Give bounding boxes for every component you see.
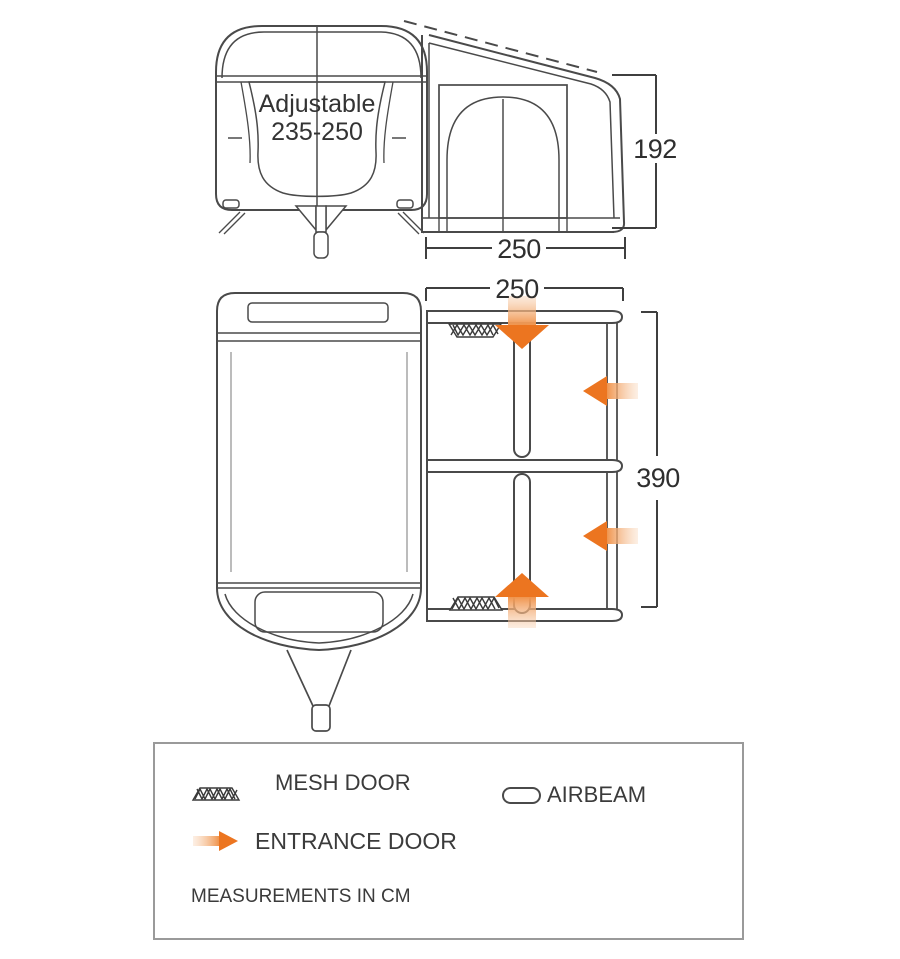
entrance-door-label: ENTRANCE DOOR [255,828,457,855]
mesh-door-symbol-front [449,324,501,337]
mesh-door-label: MESH DOOR [275,770,411,796]
awning-plan-view [427,311,622,621]
measurements-note: MEASUREMENTS IN CM [191,886,411,908]
awning-side-view [404,21,624,232]
hitch-front [296,206,346,258]
entrance-arrow-side-upper [583,376,638,406]
roof-dashed-line [404,21,597,72]
awning-dimensions-diagram: Adjustable 235-250 192 250 250 390 MESH … [0,0,900,959]
entrance-door-icon [193,830,239,852]
width-250-plan-text: 250 [495,274,539,304]
airbeam-middle [427,460,622,472]
mesh-door-icon [191,786,243,804]
airbeam-label: AIRBEAM [547,782,646,808]
entrance-arrow-side-lower [583,521,638,551]
height-192-text: 192 [633,134,677,164]
airbeam-icon [501,786,543,806]
length-390-text: 390 [636,463,680,493]
caravan-plan-view [217,293,421,731]
adjustable-range: 235-250 [271,118,363,146]
mesh-door-symbol-rear [450,597,502,610]
adjustable-label: Adjustable [259,90,376,118]
drawbar [287,650,351,731]
depth-250-side-text: 250 [497,234,541,264]
dimension-length-390 [641,312,657,607]
legend-box: MESH DOOR AIRBEAM ENTRANCE DOOR MEASUREM… [153,742,744,940]
